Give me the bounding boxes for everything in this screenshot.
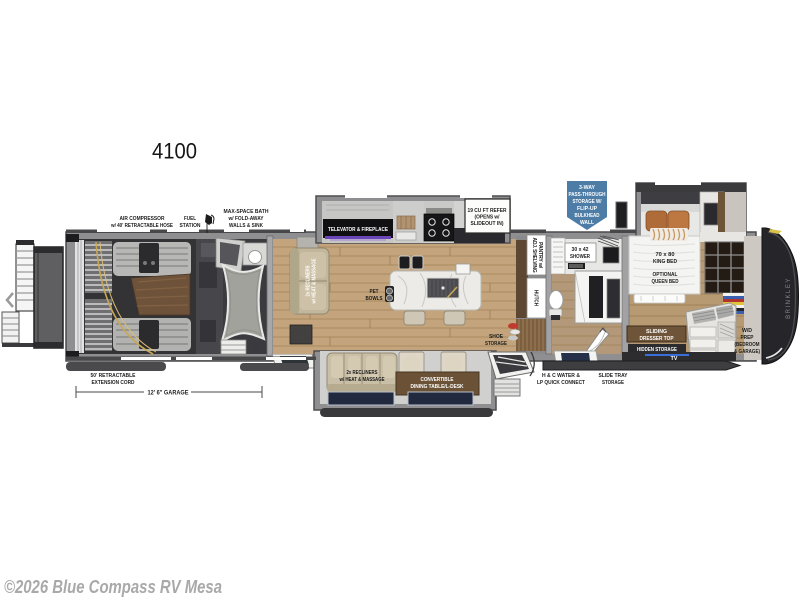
svg-text:STATION: STATION [180,223,201,229]
svg-text:70 x 80: 70 x 80 [656,252,675,258]
svg-text:©2026 Blue Compass RV Mesa: ©2026 Blue Compass RV Mesa [4,577,222,597]
svg-text:WALLS & SINK: WALLS & SINK [229,223,263,229]
svg-text:19 CU FT REFER: 19 CU FT REFER [468,208,507,214]
svg-text:SHOWER: SHOWER [570,254,590,260]
svg-text:TELEVATOR & FIREPLACE: TELEVATOR & FIREPLACE [328,227,388,233]
svg-text:12' 6" GARAGE: 12' 6" GARAGE [148,391,189,397]
svg-text:MAX-SPACE BATH: MAX-SPACE BATH [224,209,269,215]
svg-text:(OPENS w/: (OPENS w/ [475,215,500,221]
svg-text:PET: PET [370,289,380,295]
svg-text:OPTIONAL: OPTIONAL [653,272,678,278]
svg-text:SLIDEOUT IN): SLIDEOUT IN) [471,221,504,227]
svg-text:50' RETRACTABLE: 50' RETRACTABLE [91,373,136,379]
svg-text:w/ FOLD-AWAY: w/ FOLD-AWAY [228,216,264,222]
svg-text:DINING TABLE/L-DESK: DINING TABLE/L-DESK [411,384,464,390]
svg-text:AIR COMPRESSOR: AIR COMPRESSOR [120,216,165,222]
svg-text:FUEL: FUEL [184,216,196,222]
svg-text:LP QUICK CONNECT: LP QUICK CONNECT [537,380,585,386]
svg-text:STORAGE W/: STORAGE W/ [573,199,602,205]
svg-text:PANTRY w/ADJ. SHELVING: PANTRY w/ADJ. SHELVING [531,238,543,273]
svg-text:30 x 42: 30 x 42 [572,247,589,253]
svg-text:(BEDROOM: (BEDROOM [735,342,760,348]
svg-text:SLIDE TRAY: SLIDE TRAY [599,373,628,379]
svg-text:QUEEN BED: QUEEN BED [652,279,679,285]
svg-text:w/ HEAT & MASSAGE: w/ HEAT & MASSAGE [339,377,385,383]
svg-text:KING BED: KING BED [653,259,677,265]
svg-text:w/ 40' RETRACTABLE HOSE: w/ 40' RETRACTABLE HOSE [110,223,173,229]
svg-text:& GARAGE): & GARAGE) [734,349,760,355]
svg-text:CONVERTIBLE: CONVERTIBLE [421,377,454,383]
svg-text:PREP: PREP [741,335,754,341]
svg-text:HUTCH: HUTCH [533,290,539,306]
svg-text:BOWLS: BOWLS [366,296,383,302]
svg-text:BULKHEAD: BULKHEAD [575,213,600,219]
svg-text:SHOE: SHOE [489,334,503,340]
svg-text:PASS-THROUGH: PASS-THROUGH [569,192,606,198]
svg-text:DRESSER TOP: DRESSER TOP [640,336,674,342]
svg-text:SLIDING: SLIDING [646,329,667,335]
svg-text:WALL: WALL [580,220,595,226]
svg-text:BRINKLEY: BRINKLEY [786,277,792,319]
svg-text:EXTENSION CORD: EXTENSION CORD [92,380,135,386]
svg-text:FLIP-UP: FLIP-UP [577,206,597,212]
svg-text:3-WAY: 3-WAY [579,185,595,191]
svg-text:4100: 4100 [152,139,197,164]
svg-text:STORAGE: STORAGE [485,341,507,347]
svg-text:W/D: W/D [742,328,752,334]
svg-text:2x RECLINERS: 2x RECLINERS [347,370,378,376]
svg-text:H & C WATER &: H & C WATER & [542,373,580,379]
svg-text:STORAGE: STORAGE [602,380,624,386]
